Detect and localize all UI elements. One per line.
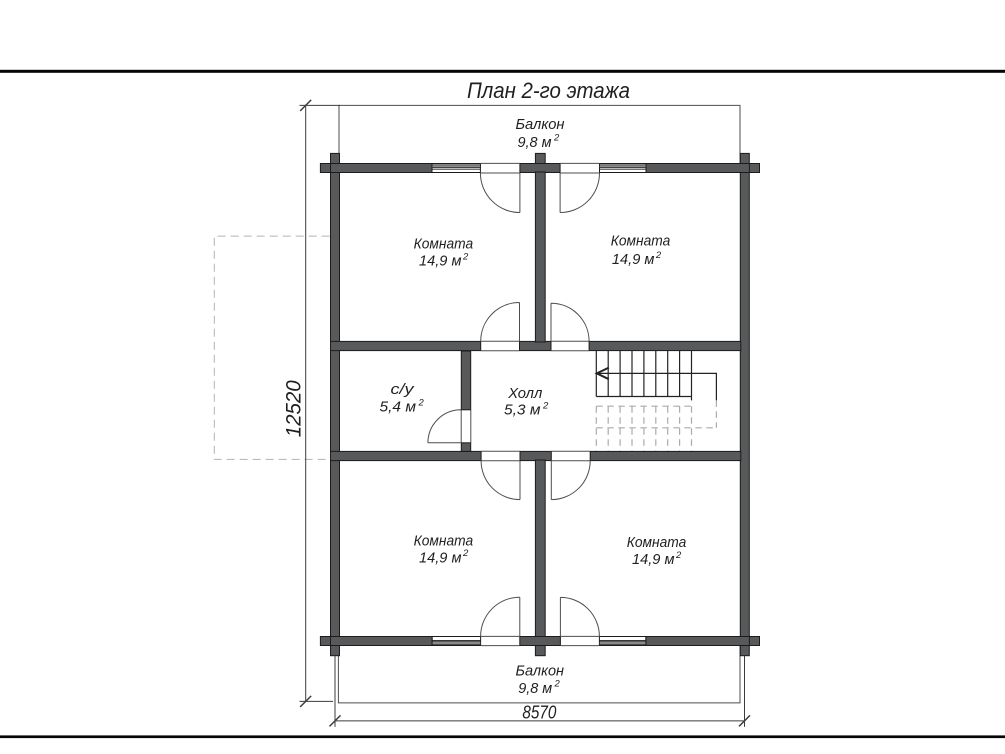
svg-text:Комната: Комната (414, 236, 474, 253)
svg-text:2: 2 (553, 133, 560, 144)
svg-text:Комната: Комната (611, 232, 671, 249)
svg-text:План 2-го этажа: План 2-го этажа (467, 78, 630, 103)
svg-text:5,4 м: 5,4 м (380, 399, 417, 416)
svg-text:14,9 м: 14,9 м (632, 551, 675, 568)
svg-text:2: 2 (462, 252, 469, 263)
svg-text:с/у: с/у (391, 381, 416, 398)
svg-text:Комната: Комната (414, 532, 474, 549)
svg-text:9,8 м: 9,8 м (518, 681, 552, 697)
svg-text:2: 2 (542, 401, 549, 412)
svg-text:8570: 8570 (522, 703, 556, 723)
svg-text:2: 2 (418, 398, 425, 409)
svg-text:Комната: Комната (627, 534, 687, 551)
svg-text:2: 2 (554, 679, 561, 690)
svg-text:2: 2 (675, 550, 682, 561)
svg-text:14,9 м: 14,9 м (612, 251, 655, 268)
svg-text:Балкон: Балкон (516, 117, 565, 133)
svg-text:Холл: Холл (507, 385, 543, 402)
svg-text:12520: 12520 (283, 380, 306, 437)
svg-text:14,9 м: 14,9 м (419, 549, 462, 566)
svg-text:5,3 м: 5,3 м (504, 402, 541, 419)
svg-text:2: 2 (655, 250, 662, 261)
svg-text:9,8 м: 9,8 м (518, 135, 552, 151)
svg-text:2: 2 (462, 548, 469, 559)
svg-text:14,9 м: 14,9 м (419, 253, 462, 270)
svg-text:Балкон: Балкон (516, 663, 565, 679)
